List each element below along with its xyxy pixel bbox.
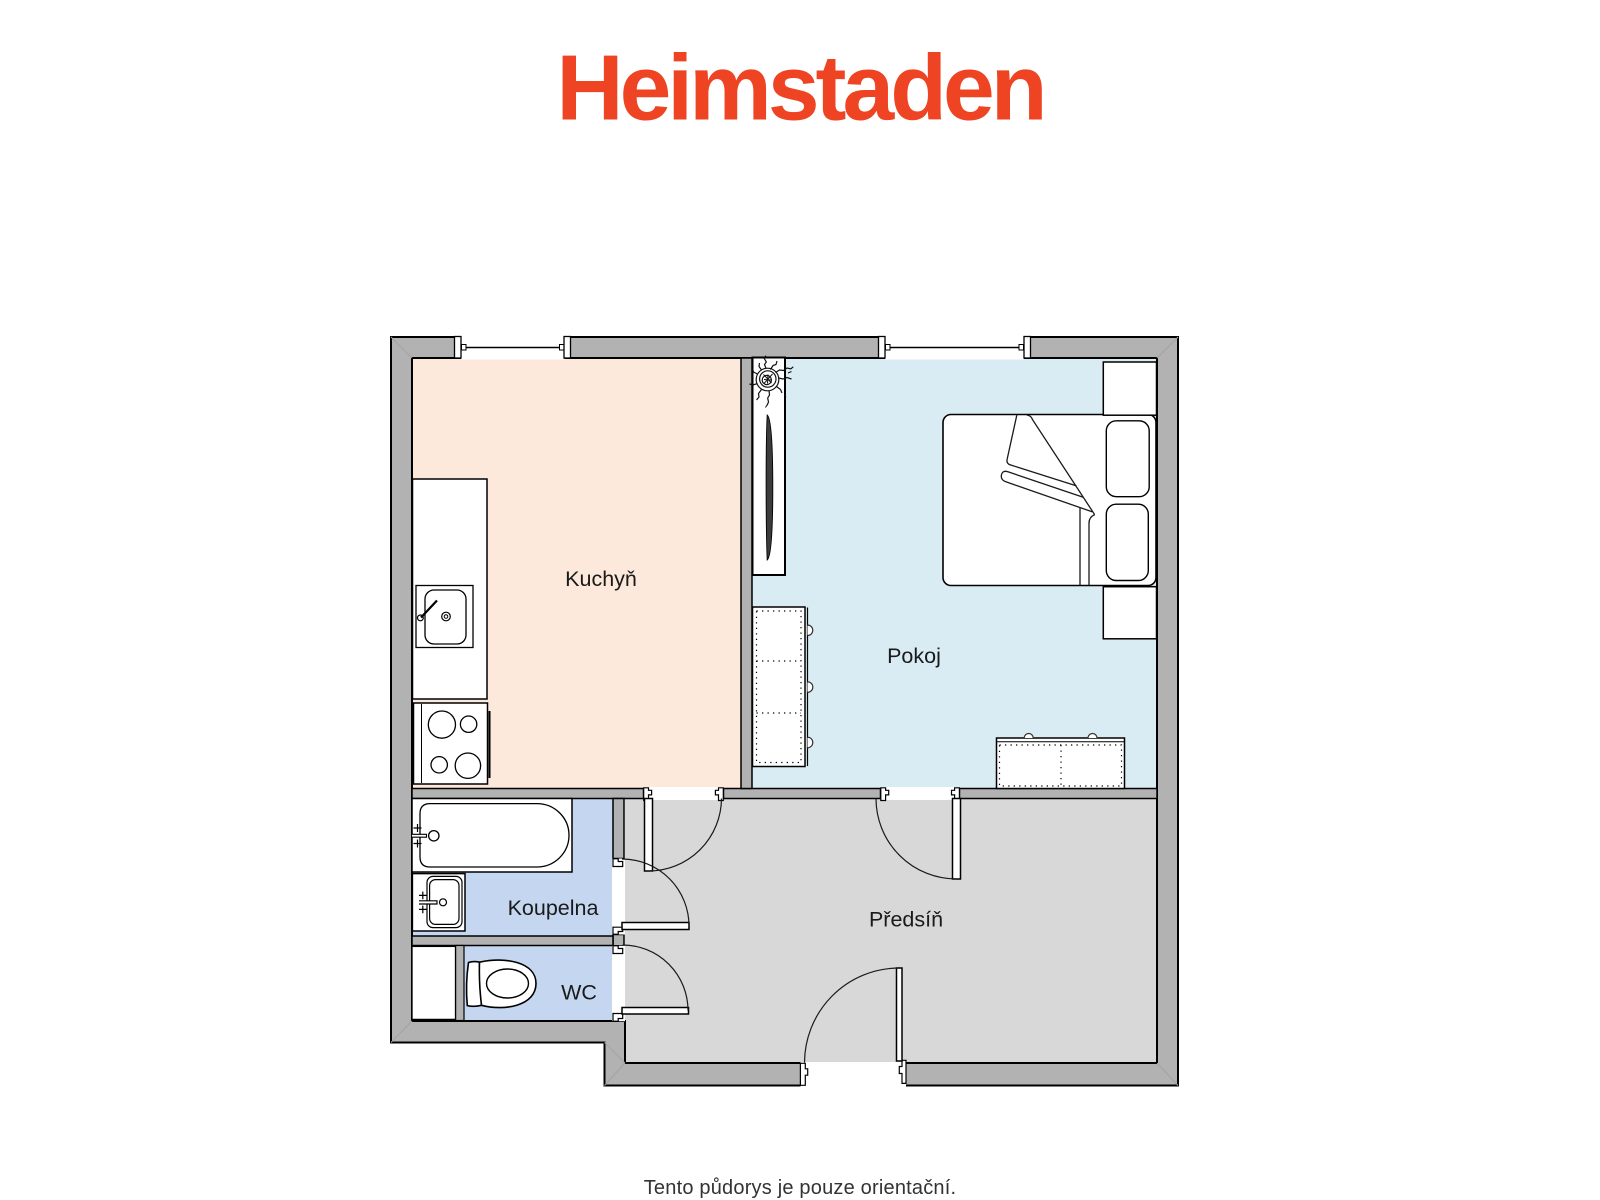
svg-text:WC: WC	[561, 981, 597, 1005]
svg-text:Heimstaden: Heimstaden	[556, 36, 1043, 140]
svg-text:Předsíň: Předsíň	[869, 908, 943, 932]
svg-text:Kuchyň: Kuchyň	[565, 567, 637, 591]
svg-text:Tento půdorys je pouze orienta: Tento půdorys je pouze orientační.	[644, 1177, 957, 1199]
svg-text:Koupelna: Koupelna	[508, 896, 599, 920]
svg-text:Pokoj: Pokoj	[887, 644, 941, 668]
